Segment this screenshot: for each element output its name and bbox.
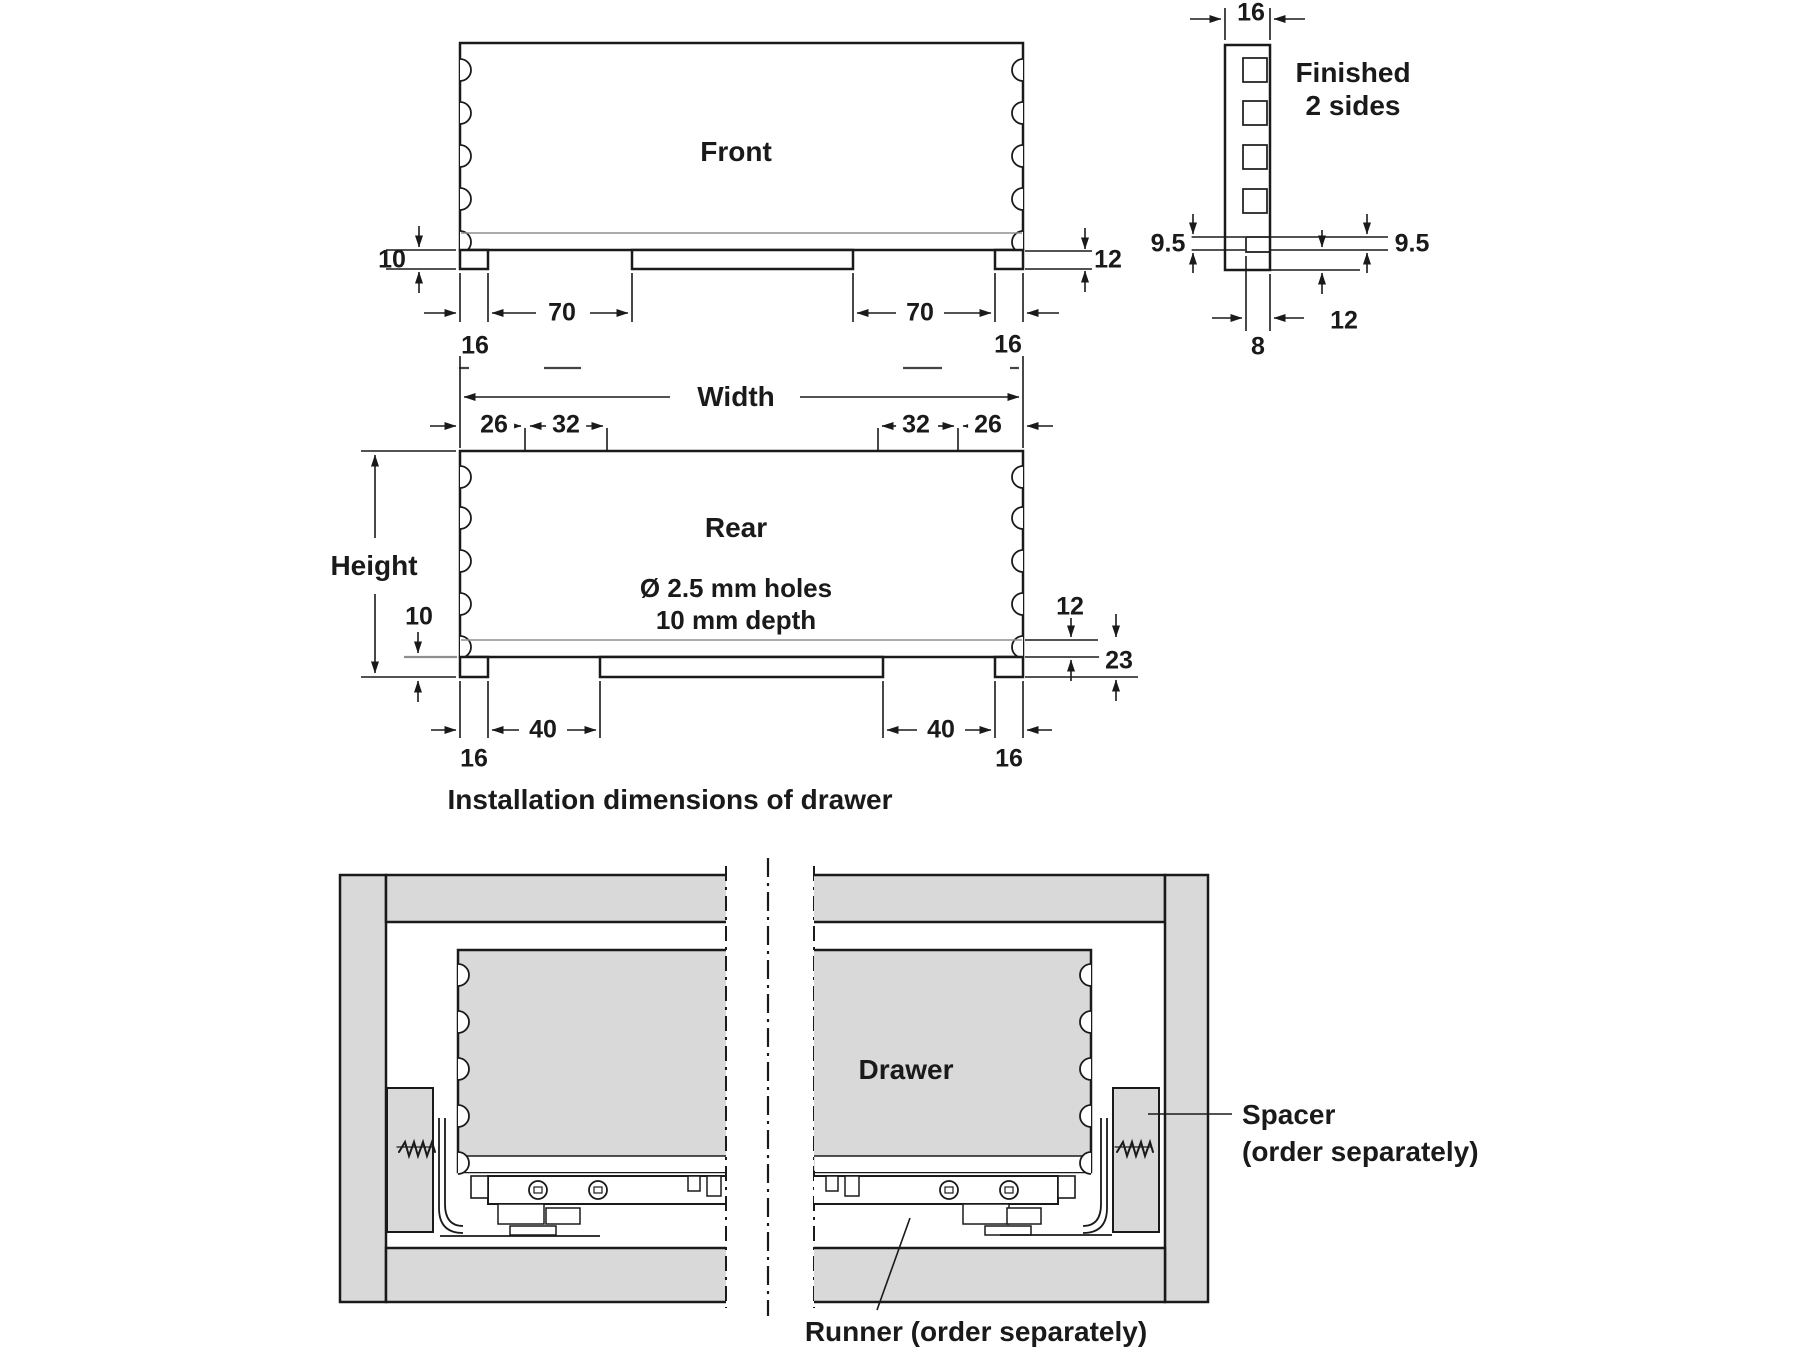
front-view-label: Front <box>700 138 772 166</box>
front-view-drawing <box>386 43 1092 368</box>
cabinet-top-rail <box>814 875 1165 922</box>
drawer-label: Drawer <box>859 1056 954 1084</box>
spacer-block <box>387 1088 433 1232</box>
section-break-lines <box>726 858 814 1316</box>
cross-section-drawing <box>340 858 1232 1316</box>
rear-dim-32-left: 32 <box>546 413 586 438</box>
side-dim-9-5-right: 9.5 <box>1389 232 1436 257</box>
rear-dim-23: 23 <box>1099 649 1139 674</box>
spacer-block <box>1113 1088 1159 1232</box>
cabinet-side-panel <box>340 875 386 1302</box>
rear-dim-26-right: 26 <box>968 413 1008 438</box>
front-dim-70-right: 70 <box>900 301 940 326</box>
cabinet-top-rail <box>386 875 726 922</box>
rear-holes-note-line2: 10 mm depth <box>656 607 816 633</box>
drawing-linework <box>0 0 1800 1350</box>
front-dim-10: 10 <box>378 248 406 273</box>
front-dim-12: 12 <box>1094 248 1122 273</box>
rear-view-label: Rear <box>705 514 767 542</box>
side-finish-note-line1: Finished <box>1295 59 1410 87</box>
side-dim-16: 16 <box>1237 1 1265 26</box>
side-dim-12: 12 <box>1330 309 1358 334</box>
front-dim-16-left: 16 <box>461 334 489 359</box>
rear-dim-10: 10 <box>405 605 433 630</box>
rear-height-label: Height <box>324 552 423 580</box>
rear-dim-12: 12 <box>1056 595 1084 620</box>
side-dim-8: 8 <box>1251 335 1265 360</box>
cabinet-bottom-panel <box>814 1248 1165 1302</box>
rear-dim-32-right: 32 <box>896 413 936 438</box>
side-dim-9-5-left: 9.5 <box>1145 232 1192 257</box>
rear-dim-16-right: 16 <box>995 747 1023 772</box>
rear-dim-16-left: 16 <box>460 747 488 772</box>
technical-drawing-page: Front 10 12 70 70 16 16 16 Finished 2 si… <box>0 0 1800 1350</box>
runner-section-right <box>814 1176 1112 1235</box>
rear-dim-40-left: 40 <box>523 718 563 743</box>
front-dim-16-right: 16 <box>994 333 1022 358</box>
spacer-label-line2: (order separately) <box>1242 1138 1479 1166</box>
rear-width-label: Width <box>691 383 781 411</box>
drawer-side-section <box>458 950 726 1172</box>
rear-dim-40-right: 40 <box>921 718 961 743</box>
side-finish-note-line2: 2 sides <box>1306 92 1401 120</box>
rear-holes-note-line1: Ø 2.5 mm holes <box>640 575 832 601</box>
runner-label: Runner (order separately) <box>805 1318 1147 1346</box>
rear-dim-26-left: 26 <box>474 413 514 438</box>
cabinet-bottom-panel <box>386 1248 726 1302</box>
left-cabinet-section <box>340 875 726 1302</box>
drawing-caption: Installation dimensions of drawer <box>448 786 893 814</box>
right-cabinet-section <box>814 875 1208 1302</box>
spacer-label-line1: Spacer <box>1242 1101 1335 1129</box>
front-dim-70-left: 70 <box>542 301 582 326</box>
cabinet-side-panel <box>1165 875 1208 1302</box>
runner-section-left <box>440 1176 726 1236</box>
